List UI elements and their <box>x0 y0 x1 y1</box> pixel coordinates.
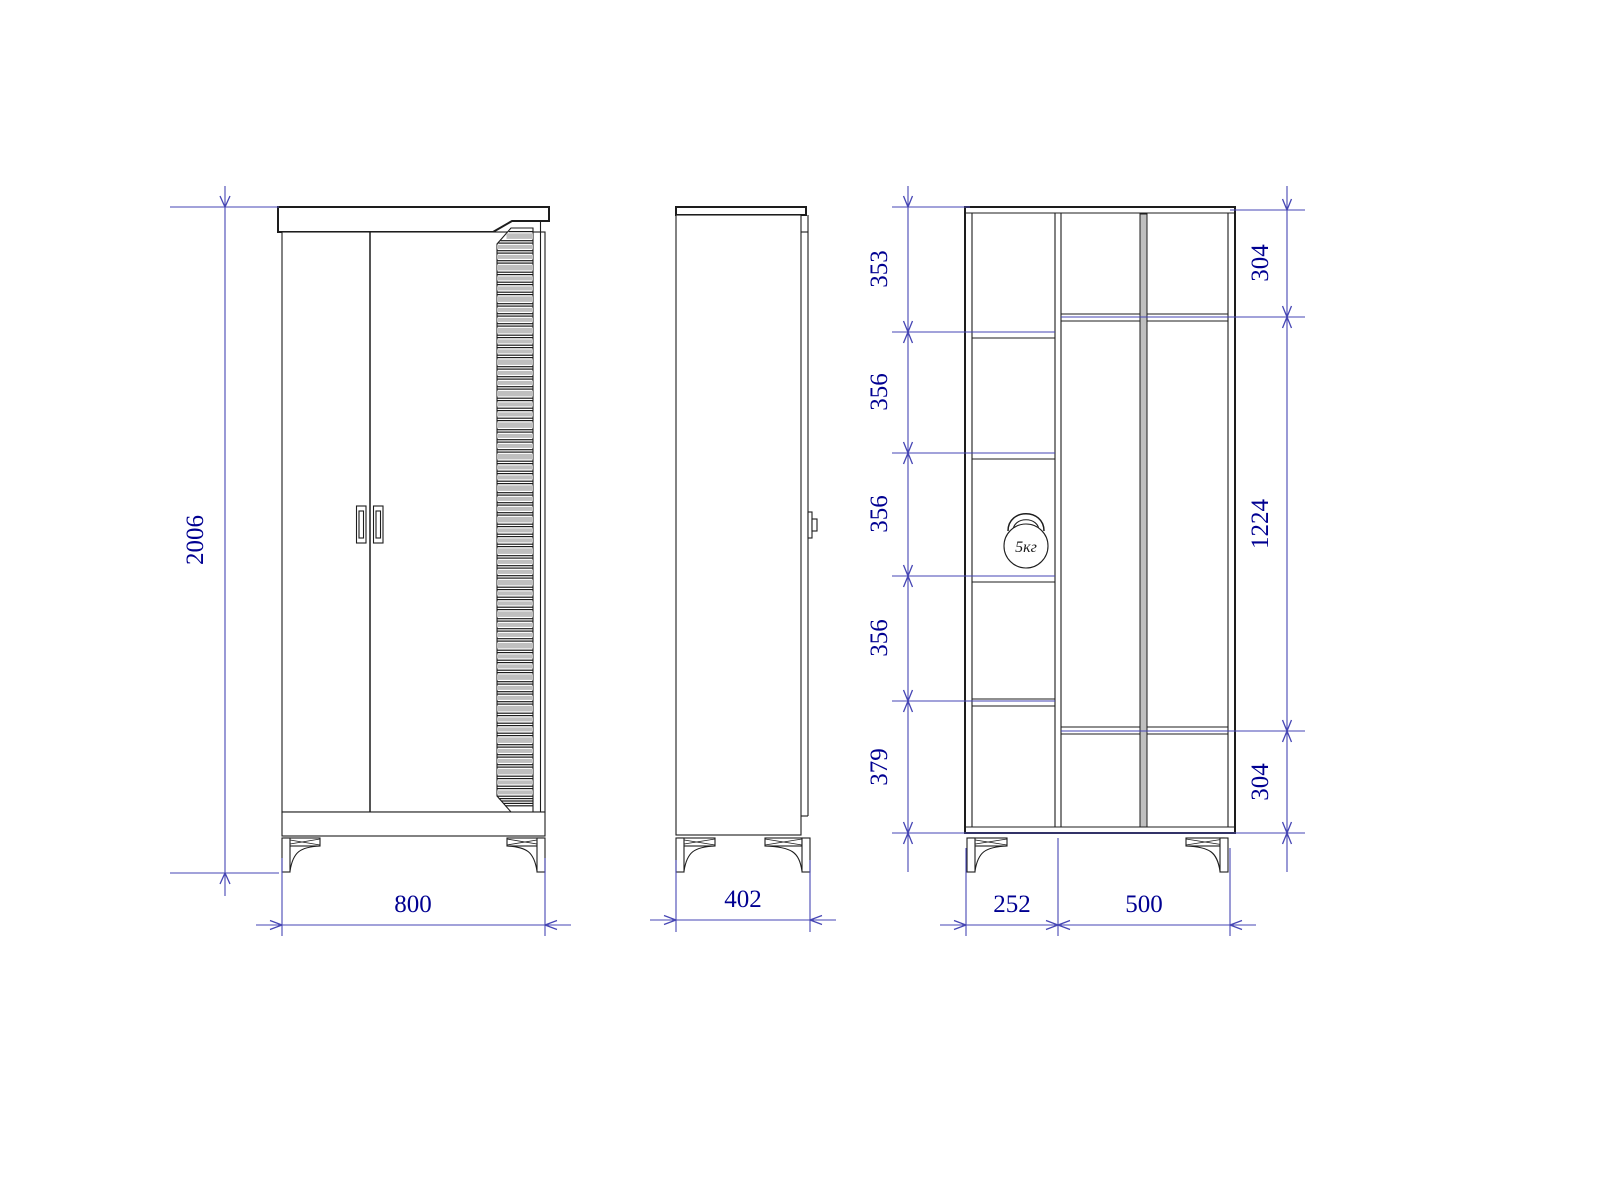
side-right-leg <box>765 838 810 872</box>
side-body <box>676 215 801 835</box>
dim-front-height: 2006 <box>170 186 279 896</box>
dim-shelf-2-text: 356 <box>866 373 893 411</box>
front-left-handle <box>357 506 367 543</box>
front-right-handle <box>374 506 384 543</box>
front-base <box>282 812 545 836</box>
interior-outline <box>965 207 1235 833</box>
dim-front-height-text: 2006 <box>182 515 209 565</box>
dim-shelf-1-text: 353 <box>866 250 893 288</box>
interior-center-divider <box>1140 214 1147 827</box>
dim-right-column-width-text: 500 <box>1125 891 1163 918</box>
load-capacity-label: 5кг <box>1015 539 1037 556</box>
dim-bottom-section-text: 304 <box>1247 763 1274 801</box>
dim-front-width: 800 <box>256 858 571 936</box>
dim-side-depth-text: 402 <box>724 886 762 913</box>
interior-left-leg <box>967 838 1007 872</box>
front-right-leg <box>507 838 545 872</box>
dim-hanging-section-text: 1224 <box>1247 499 1274 550</box>
dim-front-width-text: 800 <box>394 891 432 918</box>
front-view <box>278 207 549 872</box>
drawing-sheet: 5кг 2006 800 <box>0 0 1600 1200</box>
interior-right-leg <box>1186 838 1228 872</box>
dim-shelf-5-text: 379 <box>866 748 893 786</box>
technical-drawing-canvas: 5кг 2006 800 <box>0 0 1600 1200</box>
dim-left-column-width-text: 252 <box>993 891 1031 918</box>
dim-bottom-widths: 252 500 <box>940 838 1256 936</box>
interior-view: 5кг <box>965 207 1235 872</box>
side-door-edge <box>801 215 808 816</box>
side-top-cap <box>676 207 806 215</box>
front-left-leg <box>282 838 320 872</box>
dim-top-section-text: 304 <box>1247 244 1274 282</box>
side-handle <box>808 512 817 538</box>
side-left-leg <box>676 838 715 872</box>
side-view <box>676 207 817 872</box>
dim-shelf-4-text: 356 <box>866 619 893 657</box>
front-top-cap <box>278 207 549 232</box>
dim-shelf-3-text: 356 <box>866 495 893 533</box>
